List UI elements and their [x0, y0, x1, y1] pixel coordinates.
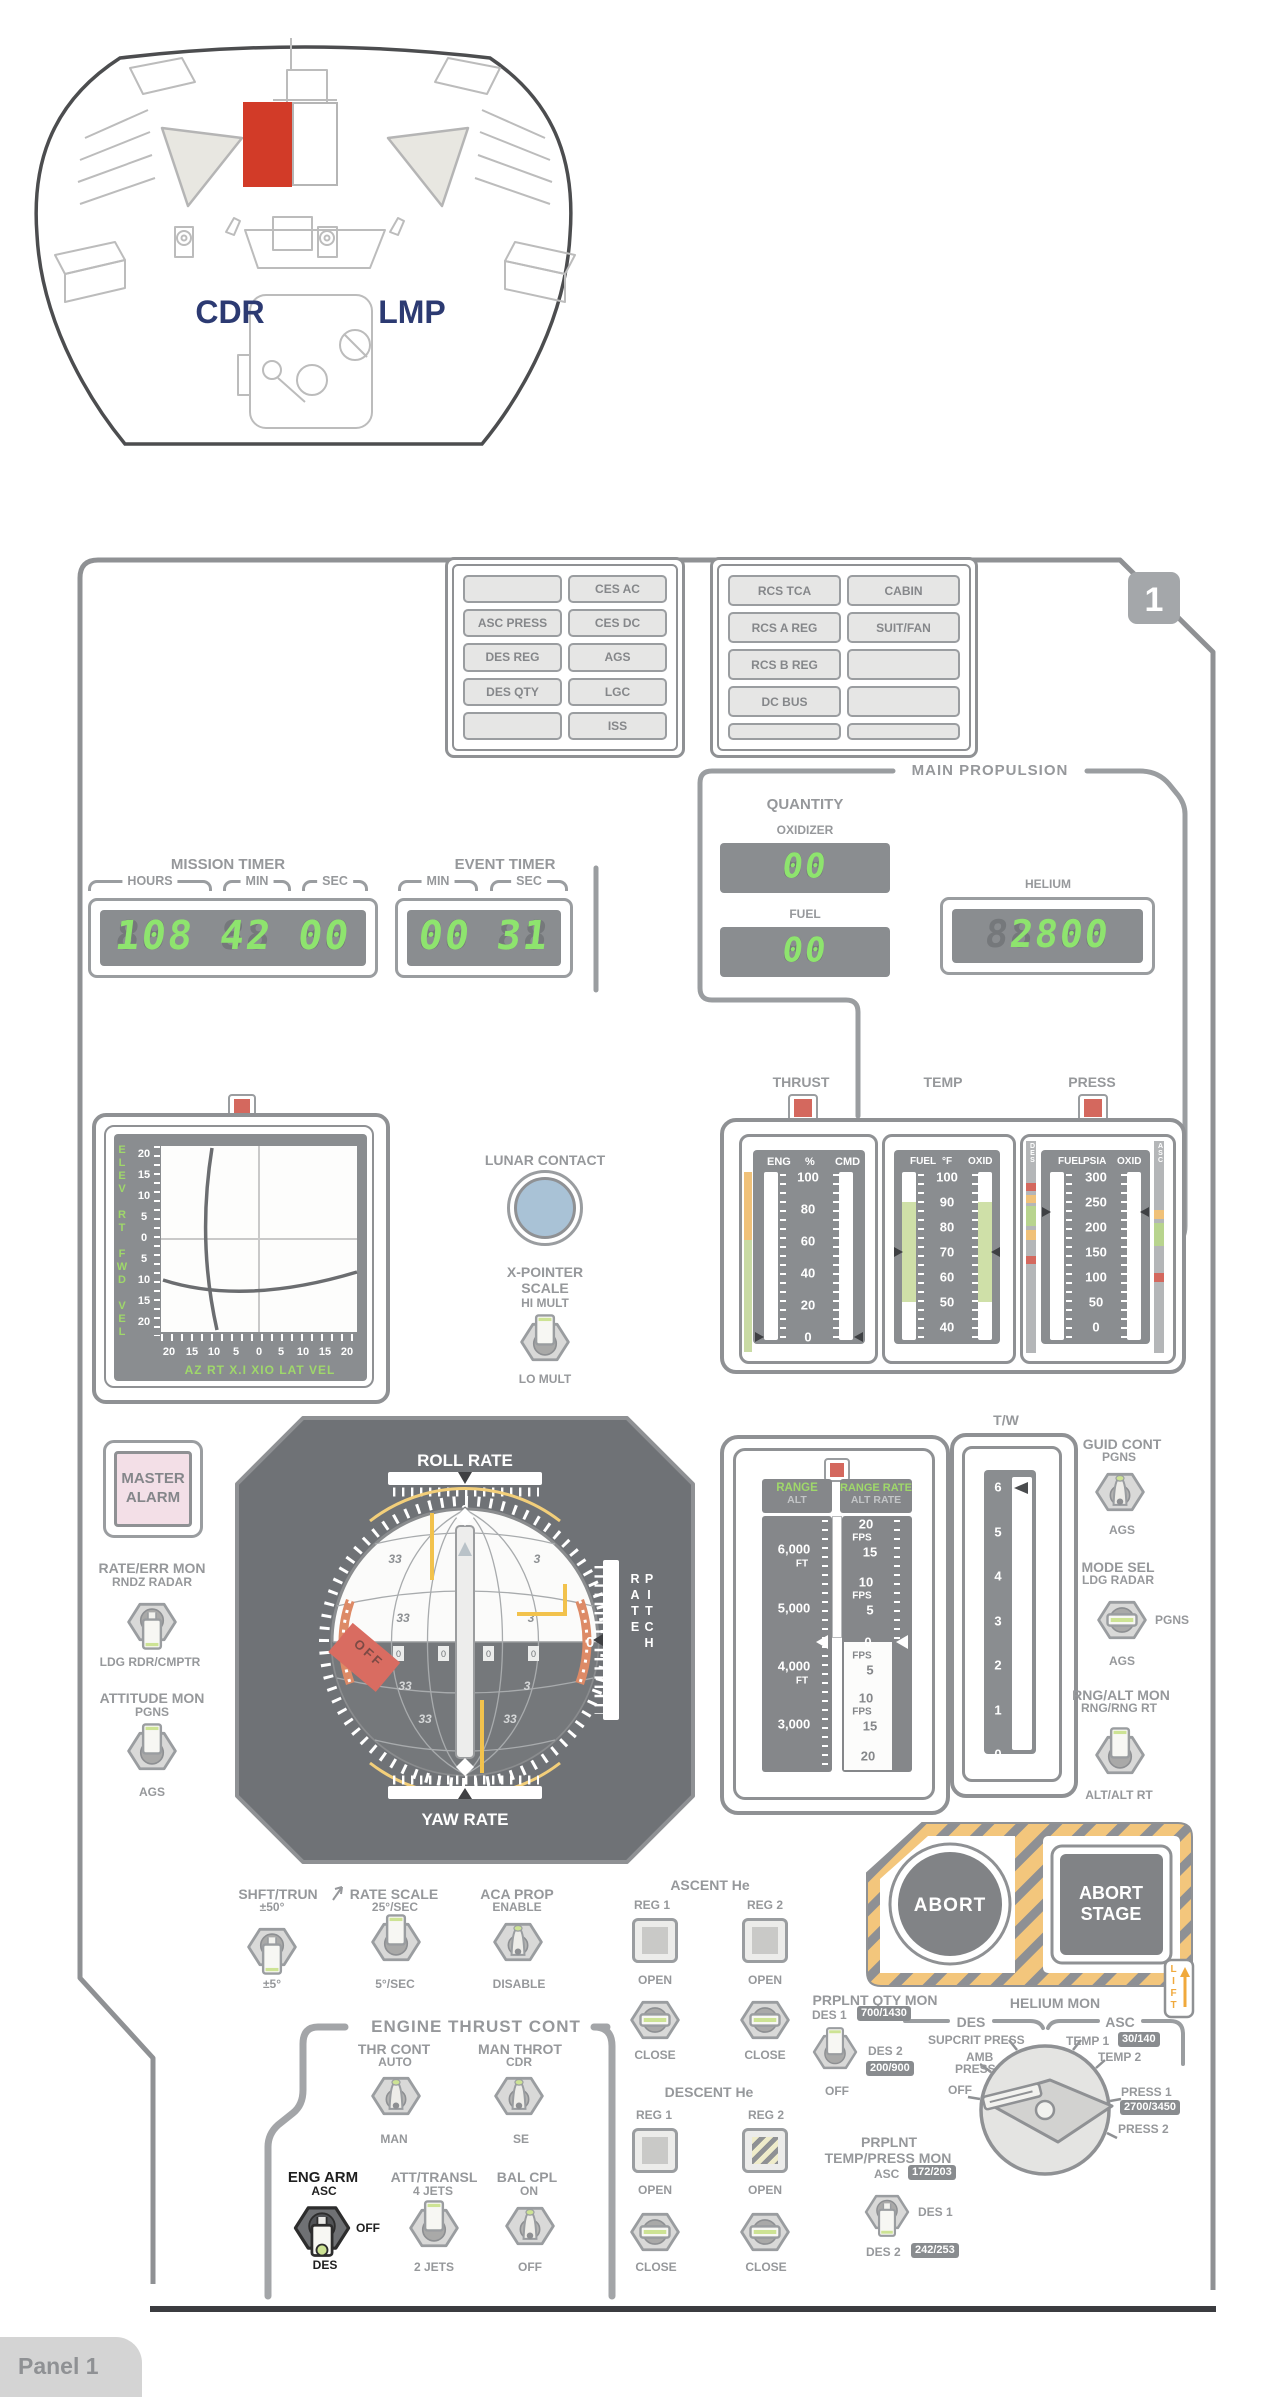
tw-gauge: 6 5 4 3 2 1 0 — [950, 1433, 1078, 1798]
quantity-title: QUANTITY — [767, 796, 844, 813]
tick-label: 5 — [141, 1253, 147, 1265]
event-timer-title: EVENT TIMER — [455, 856, 556, 873]
alt-rate-tick: 5 — [866, 1603, 873, 1618]
tick-label: 70 — [940, 1245, 954, 1260]
cw-lamp-ces-ac: CES AC — [568, 575, 667, 603]
att-transl-4jets-label: 4 JETS — [413, 2185, 453, 2199]
asc-limit-strip: ASC — [1154, 1141, 1164, 1353]
ptm-des1-label: DES 1 — [918, 2205, 953, 2219]
ptm-title2: TEMP/PRESS MON — [825, 2150, 952, 2166]
alt-tick-unit: FT — [796, 1559, 808, 1570]
alt-alt-rt-label: ALT/ALT RT — [1085, 1789, 1153, 1803]
asc-reg2-close-label: CLOSE — [744, 2049, 785, 2063]
hm-asc-label: ASC — [1105, 2014, 1135, 2030]
cw-array-left: CES AC ASC PRESS CES DC DES REG AGS DES … — [445, 557, 685, 758]
cw-array-right: RCS TCA CABIN RCS A REG SUIT/FAN RCS B R… — [710, 557, 978, 758]
xpointer-left-axis: ELEV RT FWD VEL — [116, 1144, 128, 1364]
ags-label: AGS — [139, 1786, 165, 1800]
thrust-green-band — [744, 1240, 752, 1352]
event-sec-bracket: SEC — [490, 880, 568, 891]
antenna-icon — [330, 1884, 346, 1902]
oxid-temp-pointer — [991, 1247, 1000, 1257]
tick-label: 0 — [141, 1232, 147, 1244]
pitch-rate-scale — [603, 1560, 619, 1720]
att-transl-2jets-label: 2 JETS — [414, 2261, 454, 2275]
fuel-label: FUEL — [789, 908, 820, 922]
svg-text:3: 3 — [534, 1552, 541, 1566]
tick-label: 10 — [138, 1190, 150, 1202]
svg-text:ABORT: ABORT — [914, 1895, 987, 1916]
thr-cont-switch[interactable] — [367, 2067, 425, 2125]
cw-lamp — [463, 575, 562, 603]
alt-range-instrument: RANGE ALT RANGE RATE ALT RATE 6,000 FT 5… — [720, 1435, 950, 1815]
cw-lamp-dc-bus: DC BUS — [728, 686, 841, 717]
tick-label: 15 — [138, 1295, 150, 1307]
abort-cluster: ABORT ABORT STAGE — [855, 1815, 1200, 2020]
col-pct: % — [805, 1156, 815, 1168]
alt-rate-unit: FPS — [852, 1533, 871, 1544]
thrust-gauge: ENG % CMD 100 80 60 40 20 0 — [739, 1134, 878, 1364]
des-reg2-label: REG 2 — [748, 2109, 784, 2123]
alt-tick: 5,000 — [778, 1601, 811, 1616]
vertical-needle — [163, 1272, 357, 1291]
svg-text:33: 33 — [503, 1712, 517, 1726]
mode-pgns-label: PGNS — [1155, 1613, 1189, 1627]
asc-reg1-close-label: CLOSE — [634, 2049, 675, 2063]
col-oxid: OXID — [1117, 1156, 1141, 1167]
alt-tick: 3,000 — [778, 1717, 811, 1732]
xpointer-bottom-axis: AZ RT X.I XIO LAT VEL — [185, 1363, 336, 1377]
cw-lamp-ags: AGS — [568, 643, 667, 671]
alt-tick: 6,000 — [778, 1542, 811, 1557]
des-reg2-talkback — [742, 2128, 788, 2173]
asc-reg1-talkback — [632, 1918, 678, 1963]
tick-label: 5 — [278, 1346, 284, 1358]
cw-lamp — [847, 649, 960, 680]
eng-arm-switch[interactable] — [289, 2195, 355, 2261]
man-throt-se-label: SE — [513, 2133, 529, 2147]
propulsion-gauge-cluster: ENG % CMD 100 80 60 40 20 0 FUEL °F OXID — [720, 1118, 1186, 1374]
cw-lamp — [728, 723, 841, 740]
oxid-press-pointer — [1140, 1207, 1149, 1217]
cmd-pointer — [854, 1332, 863, 1342]
fuel-value: 00 — [720, 930, 890, 970]
asc-reg2-open-label: OPEN — [748, 1974, 782, 1988]
helium-mon-title: HELIUM MON — [1010, 1995, 1100, 2011]
zero-ref-arrow-right — [896, 1635, 908, 1649]
mission-timer-title: MISSION TIMER — [171, 856, 285, 873]
xpointer-scale-switch[interactable] — [516, 1313, 574, 1371]
des-reg2-close-label: CLOSE — [745, 2261, 786, 2275]
engine-thrust-cont-title: ENGINE THRUST CONT — [371, 2017, 581, 2037]
cw-lamp-cabin: CABIN — [847, 575, 960, 606]
cw-lamp-lgc: LGC — [568, 678, 667, 706]
lm-panel1-page: CDR LMP 1 CES AC ASC PRESS CES DC DES RE… — [0, 0, 1275, 2397]
svg-text:0: 0 — [586, 1634, 594, 1651]
tw-pointer — [1014, 1482, 1028, 1494]
temp-green-band — [902, 1202, 916, 1302]
guid-ags-label: AGS — [1109, 1524, 1135, 1538]
temp-gauge: FUEL °F OXID 100 90 80 70 60 50 40 — [882, 1134, 1016, 1364]
alt-rate-tick: 15 — [863, 1719, 877, 1734]
col-degf: °F — [942, 1156, 952, 1167]
tick-label: 1 — [994, 1703, 1001, 1718]
tick-label: 150 — [1085, 1245, 1107, 1260]
tick-label: 90 — [940, 1195, 954, 1210]
svg-text:ABORT: ABORT — [1079, 1883, 1143, 1903]
tick-label: 50 — [940, 1295, 954, 1310]
asc-reg2-label: REG 2 — [747, 1899, 783, 1913]
tick-label: 250 — [1085, 1195, 1107, 1210]
alt-rate-unit: FPS — [852, 1591, 871, 1602]
tick-label: 20 — [163, 1346, 175, 1358]
rate-err-mon-title: RATE/ERR MON — [98, 1560, 205, 1576]
aca-prop-switch[interactable] — [489, 1913, 547, 1971]
cw-lamp-iss: ISS — [568, 712, 667, 740]
aca-disable-label: DISABLE — [493, 1978, 546, 1992]
panel-tab-label: Panel 1 — [18, 2353, 99, 2380]
tw-title: T/W — [993, 1412, 1019, 1428]
xpointer-plot — [161, 1146, 357, 1332]
rate-scale-switch[interactable] — [367, 1913, 425, 1971]
tick-label: 6 — [994, 1480, 1001, 1495]
lunar-contact-label: LUNAR CONTACT — [485, 1152, 605, 1168]
helium-value: 2800 — [952, 912, 1143, 956]
tick-label: 50 — [1089, 1295, 1103, 1310]
col-cmd: CMD — [835, 1156, 860, 1168]
alt-tick: 4,000 — [778, 1659, 811, 1674]
ldg-radar-label: LDG RADAR — [1082, 1574, 1154, 1588]
pqm-des2-badge: 200/900 — [866, 2061, 914, 2076]
xpointer-instrument: ELEV RT FWD VEL 20 15 10 5 0 5 10 15 20 … — [92, 1113, 390, 1404]
svg-text:0: 0 — [531, 1649, 536, 1659]
hm-press2-label: PRESS 2 — [1118, 2122, 1169, 2136]
tick-label: 300 — [1085, 1170, 1107, 1185]
lateral-needle — [206, 1148, 217, 1330]
svg-text:0: 0 — [461, 1759, 469, 1776]
rate-err-mon-switch[interactable] — [123, 1593, 181, 1651]
fuel-display: 88 00 — [720, 927, 890, 977]
cw-lamp-rcs-b-reg: RCS B REG — [728, 649, 841, 680]
event-timer-value: 00 31 — [407, 913, 561, 959]
rng-rng-rt-label: RNG/RNG RT — [1081, 1702, 1157, 1716]
tape-divider — [832, 1516, 842, 1638]
master-alarm-label: MASTER — [121, 1470, 184, 1489]
xpointer-scale-title: X-POINTER — [507, 1264, 583, 1280]
pqm-des1-label: DES 1 — [812, 2008, 847, 2022]
man-throt-switch[interactable] — [490, 2067, 548, 2125]
oxidizer-label: OXIDIZER — [777, 824, 834, 838]
alt-header: ALT — [762, 1494, 832, 1506]
master-alarm-button[interactable]: MASTER ALARM — [103, 1440, 203, 1538]
ptm-des2-badge: 242/253 — [911, 2243, 959, 2258]
sec-label: SEC — [317, 874, 353, 888]
alt-rate-tick: 5 — [866, 1663, 873, 1678]
fuel-temp-pointer — [894, 1247, 903, 1257]
tick-label: 0 — [994, 1747, 1001, 1755]
col-fuel: FUEL — [910, 1156, 936, 1167]
attitude-mon-switch[interactable] — [123, 1722, 181, 1780]
tick-label: 40 — [940, 1320, 954, 1335]
col-oxid: OXID — [968, 1156, 992, 1167]
asc-reg1-label: REG 1 — [634, 1899, 670, 1913]
xpointer-scale-title2: SCALE — [521, 1280, 568, 1296]
des-reg1-label: REG 1 — [636, 2109, 672, 2123]
min-label: MIN — [241, 874, 274, 888]
oxidizer-display: 88 00 — [720, 843, 890, 893]
tick-label: 20 — [341, 1346, 353, 1358]
tick-label: 10 — [138, 1274, 150, 1286]
thr-man-label: MAN — [380, 2133, 407, 2147]
des-limit-strip: DES — [1026, 1141, 1036, 1353]
prplnt-qty-mon-switch[interactable] — [809, 2026, 861, 2078]
ldg-rdr-cmptr-label: LDG RDR/CMPTR — [100, 1656, 201, 1670]
rndz-radar-label: RNDZ RADAR — [112, 1576, 192, 1590]
ascent-he-title: ASCENT He — [670, 1877, 749, 1893]
range-rate-header: RANGE RATE — [840, 1482, 912, 1494]
fuel-press-pointer — [1042, 1207, 1051, 1217]
hm-temp1-badge: 30/140 — [1118, 2032, 1160, 2047]
tick-label: 40 — [801, 1266, 815, 1281]
event-min-label: MIN — [422, 874, 455, 888]
fdai-center-bar — [456, 1526, 474, 1758]
mode-sel-switch[interactable] — [1093, 1591, 1151, 1649]
min-bracket: MIN — [223, 880, 291, 891]
cw-lamp-des-qty: DES QTY — [463, 678, 562, 706]
tick-label: 3 — [994, 1614, 1001, 1629]
cw-lamp-ces-dc: CES DC — [568, 609, 667, 637]
des-reg2-open-label: OPEN — [748, 2184, 782, 2198]
bal-off-label: OFF — [518, 2261, 542, 2275]
svg-text:33: 33 — [388, 1552, 402, 1566]
tick-label: 20 — [138, 1148, 150, 1160]
sec-bracket: SEC — [302, 880, 368, 891]
alt-rate-tick: 20 — [859, 1517, 873, 1532]
col-fuel: FUEL — [1058, 1156, 1084, 1167]
shft-down-label: ±5° — [263, 1978, 281, 1992]
temp-green-band — [978, 1202, 992, 1302]
asc-reg2-talkback — [742, 1918, 788, 1963]
tick-label: 10 — [297, 1346, 309, 1358]
cw-lamp-rcs-tca: RCS TCA — [728, 575, 841, 606]
rate-scale-down-label: 5°/SEC — [375, 1978, 414, 1992]
tick-label: 15 — [138, 1169, 150, 1181]
tick-label: 80 — [801, 1202, 815, 1217]
ptm-asc-badge: 172/203 — [908, 2165, 956, 2180]
press-gauge: DES ASC FUEL PSIA OXID 300 250 200 150 1… — [1020, 1134, 1176, 1364]
tick-label: 4 — [994, 1569, 1001, 1584]
tick-label: 2 — [994, 1658, 1001, 1673]
bal-cpl-title: BAL CPL — [497, 2169, 557, 2185]
tick-label: 20 — [801, 1298, 815, 1313]
tick-label: 10 — [208, 1346, 220, 1358]
bal-cpl-switch[interactable] — [501, 2197, 559, 2255]
des-reg2-switch[interactable] — [736, 2203, 794, 2261]
svg-text:STAGE: STAGE — [1081, 1904, 1142, 1924]
asc-reg1-open-label: OPEN — [638, 1974, 672, 1988]
asc-reg1-switch[interactable] — [626, 1991, 684, 2049]
cw-lamp-asc-press: ASC PRESS — [463, 609, 562, 637]
tick-label: 200 — [1085, 1220, 1107, 1235]
des-reg1-switch[interactable] — [626, 2203, 684, 2261]
yaw-rate-label: YAW RATE — [422, 1810, 509, 1829]
event-min-bracket: MIN — [398, 880, 478, 891]
alt-rate-zero: 0 — [864, 1635, 871, 1650]
event-timer-display: 88 88 00 31 — [395, 898, 573, 978]
temp-title: TEMP — [924, 1074, 963, 1090]
tick-label: 5 — [141, 1211, 147, 1223]
des-reg1-open-label: OPEN — [638, 2184, 672, 2198]
svg-text:0: 0 — [396, 1649, 401, 1659]
alt-rate-unit: FPS — [852, 1651, 871, 1662]
hm-off-label: OFF — [948, 2083, 972, 2097]
panel-tab: Panel 1 — [0, 2337, 142, 2397]
mission-timer-value: 108 42 00 — [100, 913, 366, 959]
ptm-title1: PRPLNT — [861, 2134, 917, 2150]
main-propulsion-title: MAIN PROPULSION — [912, 762, 1069, 779]
svg-text:0: 0 — [441, 1649, 446, 1659]
svg-text:33: 33 — [418, 1712, 432, 1726]
eng-pointer — [755, 1332, 764, 1342]
shft-up-label: ±50° — [260, 1901, 285, 1915]
helium-label: HELIUM — [1025, 878, 1071, 892]
svg-text:33: 33 — [396, 1611, 410, 1625]
prplnt-temp-press-mon-switch[interactable] — [861, 2186, 913, 2238]
cw-lamp-des-reg: DES REG — [463, 643, 562, 671]
thrust-orange-band — [744, 1172, 752, 1240]
roll-rate-label: ROLL RATE — [417, 1451, 513, 1470]
cw-lamp — [847, 723, 960, 740]
lift-label: LIFT — [1168, 1964, 1179, 2012]
tick-label: 100 — [936, 1170, 958, 1185]
cw-lamp — [847, 686, 960, 717]
oxidizer-value: 00 — [720, 846, 890, 886]
hm-des-label: DES — [957, 2014, 986, 2030]
alt-rate-tick: 15 — [863, 1545, 877, 1560]
pqm-des1-badge: 700/1430 — [857, 2006, 911, 2021]
tick-label: 0 — [804, 1330, 811, 1345]
svg-text:0: 0 — [486, 1649, 491, 1659]
pitch-rate-label: PITCH RATE — [628, 1572, 656, 1717]
att-transl-switch[interactable] — [405, 2199, 463, 2257]
att-transl-title: ATT/TRANSL — [391, 2169, 478, 2185]
range-header: RANGE — [762, 1482, 832, 1494]
eng-arm-des-label: DES — [313, 2259, 338, 2273]
tick-label: 0 — [256, 1346, 262, 1358]
des-reg1-close-label: CLOSE — [635, 2261, 676, 2275]
lo-mult-label: LO MULT — [519, 1373, 571, 1387]
tick-label: 5 — [233, 1346, 239, 1358]
alt-tick-unit: FT — [796, 1676, 808, 1687]
hours-bracket: HOURS — [88, 880, 212, 891]
rng-alt-mon-switch[interactable] — [1091, 1726, 1149, 1784]
ptm-des2-label: DES 2 — [866, 2245, 901, 2259]
eng-arm-off-label: OFF — [356, 2221, 380, 2235]
event-sec-label: SEC — [511, 874, 547, 888]
tick-label: 100 — [1085, 1270, 1107, 1285]
tick-label: 60 — [801, 1234, 815, 1249]
hm-press1-badge: 2700/3450 — [1120, 2100, 1180, 2115]
svg-text:1: 1 — [1145, 581, 1164, 619]
tick-label: 15 — [319, 1346, 331, 1358]
alt-rate-tick: 20 — [861, 1749, 875, 1764]
ptm-asc-label: ASC — [874, 2167, 899, 2181]
pqm-des2-label: DES 2 — [868, 2044, 903, 2058]
tick-label: 20 — [138, 1316, 150, 1328]
shft-trun-switch[interactable] — [243, 1918, 301, 1976]
attitude-mon-title: ATTITUDE MON — [100, 1690, 205, 1706]
helium-mon-rotary[interactable] — [975, 2040, 1115, 2180]
svg-text:3: 3 — [524, 1679, 531, 1693]
col-psia: PSIA — [1083, 1156, 1106, 1167]
svg-text:33: 33 — [398, 1679, 412, 1693]
alt-rate-unit: FPS — [852, 1707, 871, 1718]
des-reg1-talkback — [632, 2128, 678, 2173]
mode-ags-label: AGS — [1109, 1655, 1135, 1669]
cw-lamp — [463, 712, 562, 740]
pqm-off-label: OFF — [825, 2085, 849, 2099]
thrust-title: THRUST — [773, 1074, 830, 1090]
tick-label: 80 — [940, 1220, 954, 1235]
press-title: PRESS — [1068, 1074, 1115, 1090]
tick-label: 15 — [186, 1346, 198, 1358]
alt-rate-tick: 10 — [859, 1575, 873, 1590]
des-strip-label: DES — [1026, 1143, 1036, 1164]
helium-display: 88888 2800 — [940, 897, 1155, 975]
alt-rate-tick: 10 — [859, 1691, 873, 1706]
descent-he-title: DESCENT He — [665, 2084, 754, 2100]
guid-cont-switch[interactable] — [1091, 1463, 1149, 1521]
pgns-label: PGNS — [135, 1706, 169, 1720]
zero-ref-arrow-left — [816, 1635, 828, 1649]
lunar-contact-light — [507, 1170, 583, 1246]
hi-mult-label: HI MULT — [521, 1297, 569, 1311]
mission-timer-display: 888 88 88 108 42 00 — [88, 898, 378, 978]
tick-label: 60 — [940, 1270, 954, 1285]
cw-lamp-suit-fan: SUIT/FAN — [847, 612, 960, 643]
asc-strip-label: ASC — [1154, 1143, 1164, 1164]
tick-label: 0 — [1092, 1320, 1099, 1335]
asc-reg2-switch[interactable] — [736, 1991, 794, 2049]
cw-lamp-rcs-a-reg: RCS A REG — [728, 612, 841, 643]
hm-press1-label: PRESS 1 — [1121, 2085, 1172, 2099]
tick-label: 100 — [797, 1170, 819, 1185]
hours-label: HOURS — [122, 874, 177, 888]
alt-rate-header: ALT RATE — [840, 1494, 912, 1506]
master-alarm-label2: ALARM — [126, 1489, 180, 1508]
col-eng: ENG — [767, 1156, 791, 1168]
tick-label: 5 — [994, 1525, 1001, 1540]
